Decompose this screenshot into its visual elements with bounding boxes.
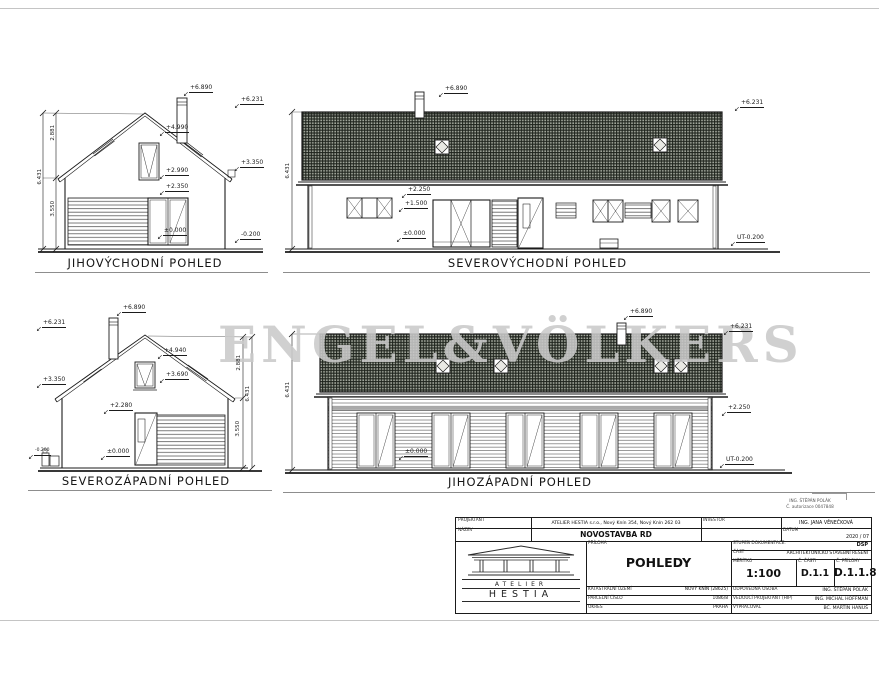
label-priloha: PŘÍLOHA bbox=[588, 542, 607, 547]
level-label: -0.200 bbox=[240, 232, 261, 240]
roof-window bbox=[435, 140, 449, 154]
chimney bbox=[415, 92, 424, 118]
drawing-sheet: ENGEL&VÖLKERS +6.890 +6.231 +4.990 +3.35… bbox=[0, 0, 879, 681]
downpipe bbox=[329, 398, 332, 469]
level-label: +6.890 bbox=[444, 86, 468, 94]
level-label: -0.200 bbox=[34, 449, 51, 456]
slat-panel bbox=[157, 415, 225, 465]
chimney bbox=[177, 98, 187, 143]
dim-label: 2.881 bbox=[237, 355, 243, 371]
entry-door bbox=[518, 198, 543, 248]
stupen-value: DSP bbox=[733, 543, 870, 549]
label-nazev: NÁZEV bbox=[458, 529, 473, 534]
label-projektant: PROJEKTANT bbox=[458, 519, 485, 524]
sheet-bottom-edge-line bbox=[0, 620, 879, 621]
level-label: UT-0.200 bbox=[725, 457, 754, 465]
window-pair bbox=[593, 200, 623, 222]
slat-panel bbox=[492, 200, 517, 247]
window bbox=[652, 200, 670, 222]
level-label: +1.500 bbox=[404, 201, 428, 209]
entry-door bbox=[135, 413, 157, 465]
level-label: +3.350 bbox=[240, 160, 264, 168]
label-c-casti: Č. ČÁSTI bbox=[798, 560, 816, 565]
level-label: +2.350 bbox=[165, 184, 189, 192]
parcela-value: 1086/8 bbox=[588, 597, 730, 602]
dimension-lines bbox=[289, 109, 302, 252]
projektant-address: ATELIER HESTIA s.r.o., Nový Knín 354, No… bbox=[531, 521, 701, 526]
caption-sz: SEVEROZÁPADNÍ POHLED bbox=[30, 474, 262, 488]
note-line2: Č. autorizace 0047848 bbox=[760, 504, 860, 510]
level-label: ±0.000 bbox=[404, 449, 428, 457]
level-label: +6.231 bbox=[42, 320, 66, 328]
caption-jv: JIHOVÝCHODNÍ POHLED bbox=[35, 256, 255, 270]
elevation-sv-drawing bbox=[280, 82, 870, 282]
dim-label: 6.431 bbox=[246, 386, 252, 402]
investor-name: ING. JANA VĚNEČKOVÁ bbox=[781, 521, 871, 526]
level-label: +6.231 bbox=[740, 100, 764, 108]
downpipe bbox=[708, 398, 711, 469]
caption-sv: SEVEROVÝCHODNÍ POHLED bbox=[285, 256, 790, 270]
drawing-number: D.1.1.8 bbox=[834, 568, 871, 580]
triple-window bbox=[347, 198, 392, 218]
level-label: +3.690 bbox=[165, 372, 189, 380]
title-block: PROJEKTANT ATELIER HESTIA s.r.o., Nový K… bbox=[455, 517, 872, 614]
part-number: D.1.1 bbox=[796, 569, 834, 579]
cast-value: ARCHITEKTONICKO STAVEBNÍ ŘEŠENÍ bbox=[733, 552, 870, 557]
window bbox=[678, 200, 698, 222]
level-label: +2.990 bbox=[165, 168, 189, 176]
level-label: +2.280 bbox=[109, 403, 133, 411]
label-meritko: MĚŘÍTKO bbox=[733, 560, 752, 565]
sheet-title: POHLEDY bbox=[586, 556, 731, 570]
level-label: +2.250 bbox=[727, 405, 751, 413]
atelier-hestia-logo bbox=[464, 544, 578, 578]
level-label: +6.231 bbox=[729, 324, 753, 332]
downpipe bbox=[713, 186, 716, 248]
patio-door bbox=[148, 198, 188, 245]
glazed-door bbox=[433, 200, 490, 247]
chimney bbox=[109, 318, 118, 359]
level-label: UT-0.200 bbox=[736, 235, 765, 243]
level-label: +6.890 bbox=[122, 305, 146, 313]
elevation-jv-drawing bbox=[35, 82, 270, 282]
gable-window bbox=[133, 362, 157, 390]
door-step bbox=[600, 239, 618, 248]
vedouci-value: ING. MICHAL HOFFMAN bbox=[733, 597, 870, 602]
level-label: +6.890 bbox=[189, 85, 213, 93]
gable-window bbox=[139, 143, 159, 180]
level-label: ±0.000 bbox=[402, 231, 426, 239]
katast-value: NOVÝ KNÍN (28625) bbox=[588, 588, 730, 593]
level-label: +6.231 bbox=[240, 97, 264, 105]
project-title: NOVOSTAVBA RD bbox=[531, 531, 701, 539]
level-label: ±0.000 bbox=[106, 449, 130, 457]
date-value: 2020 / 07 bbox=[781, 535, 871, 540]
eaves-fascia bbox=[296, 182, 728, 185]
caption-underline bbox=[35, 272, 268, 273]
caption-jz: JIHOZÁPADNÍ POHLED bbox=[285, 475, 755, 489]
logo-text-hestia: HESTIA bbox=[456, 589, 586, 600]
logo-text-atelier: ATELIER bbox=[456, 581, 586, 588]
label-investor: INVESTOR bbox=[703, 519, 725, 524]
dim-label: 3.550 bbox=[236, 421, 242, 437]
sheet-top-edge-line bbox=[0, 8, 879, 9]
dim-label: 2.881 bbox=[51, 125, 57, 141]
label-c-prilohy: Č. PŘÍLOHY bbox=[836, 560, 860, 565]
vypracoval-value: BC. MARTIN HANUŠ bbox=[733, 606, 870, 611]
watermark: ENGEL&VÖLKERS bbox=[218, 315, 804, 374]
level-label: +4.990 bbox=[165, 125, 189, 133]
dim-label: 6.431 bbox=[38, 169, 44, 185]
okres-value: PRAHA bbox=[588, 606, 730, 611]
authorization-note: ING. ŠTĚPÁN POLÁK Č. autorizace 0047848 bbox=[760, 498, 860, 510]
level-label: +4.940 bbox=[163, 348, 187, 356]
caption-underline bbox=[28, 490, 272, 491]
downpipe bbox=[309, 186, 312, 248]
level-label: +3.350 bbox=[42, 377, 66, 385]
logo-divider bbox=[462, 601, 580, 602]
level-label: +6.890 bbox=[629, 309, 653, 317]
level-label: +2.250 bbox=[407, 187, 431, 195]
dim-label: 6.431 bbox=[286, 163, 292, 179]
slat-panel bbox=[556, 203, 576, 218]
level-label: ±0.000 bbox=[163, 228, 187, 236]
caption-underline bbox=[283, 272, 870, 273]
odpovedna-value: ING. ŠTĚPÁN POLÁK bbox=[733, 588, 870, 593]
scale-value: 1:100 bbox=[731, 568, 796, 580]
slat-panel bbox=[625, 203, 651, 218]
label-datum: DATUM bbox=[783, 529, 798, 534]
slat-panel bbox=[68, 198, 150, 245]
roof-window bbox=[653, 138, 667, 152]
dim-label: 3.550 bbox=[51, 201, 57, 217]
caption-underline bbox=[283, 492, 875, 493]
dim-label: 6.431 bbox=[286, 382, 292, 398]
